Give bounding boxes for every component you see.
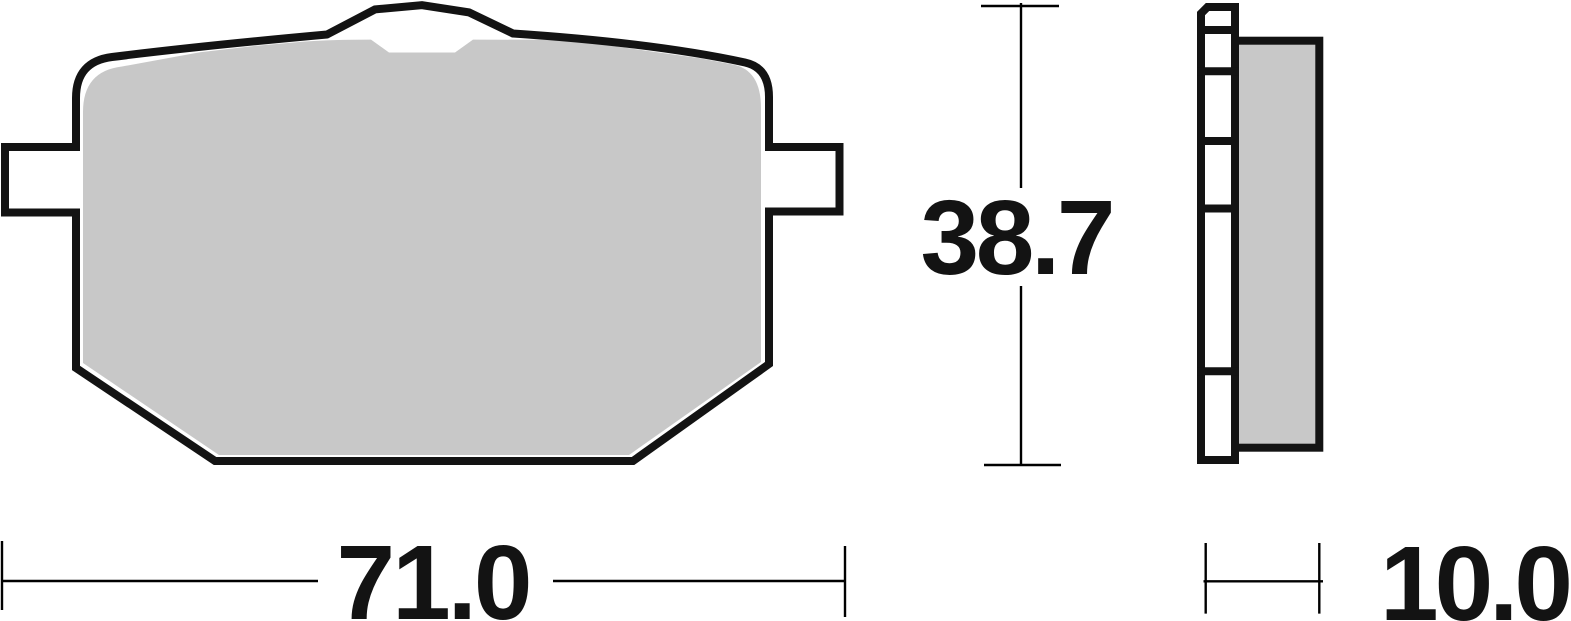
svg-text:38.7: 38.7 [921, 180, 1116, 297]
svg-text:10.0: 10.0 [1380, 526, 1571, 621]
svg-text:71.0: 71.0 [337, 525, 533, 621]
